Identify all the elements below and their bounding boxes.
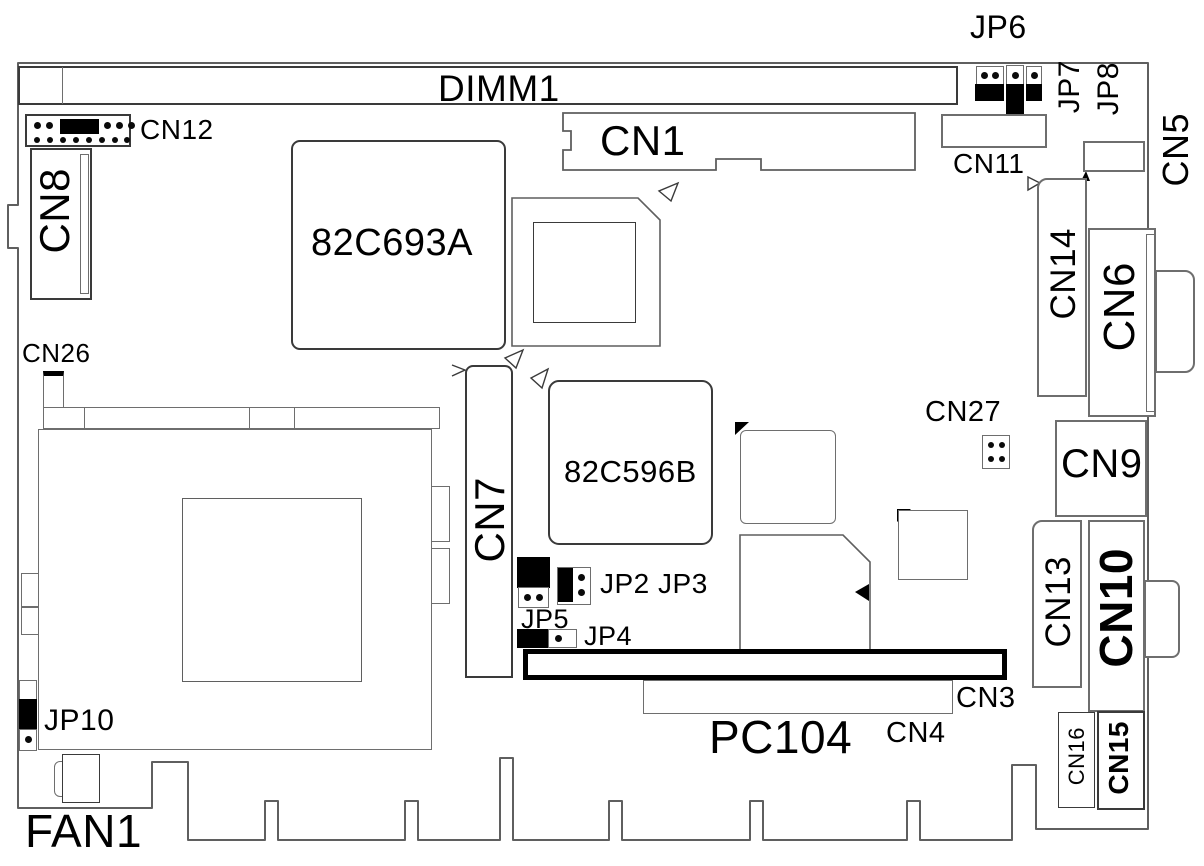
fan1-connector <box>62 754 100 803</box>
cn26-connector <box>43 371 64 408</box>
cn11-connector <box>941 114 1047 148</box>
cn26-label: CN26 <box>22 340 90 366</box>
jp7-label: JP7 <box>1055 60 1085 113</box>
pin1-arrow-white-cn1 <box>659 183 678 201</box>
jp7-jumper-cap <box>1006 84 1024 115</box>
cn7-label: CN7 <box>469 477 511 563</box>
cn4-pc104-header <box>643 680 953 714</box>
cn13-label: CN13 <box>1041 556 1076 647</box>
dimm1-socket-divider <box>62 67 63 104</box>
small-component-near-cn5 <box>1083 141 1145 172</box>
jp2-jumper-cap <box>517 557 550 588</box>
pin1-chevron-cn7 <box>452 365 465 376</box>
cpu-socket-left-tab-1 <box>21 573 39 607</box>
cn3-pc104-header <box>523 649 1007 680</box>
jp3-jumper <box>557 567 591 605</box>
jp10-pin-top <box>19 680 37 700</box>
chip-82c596b-label: 82C596B <box>564 456 697 487</box>
cn9-label: CN9 <box>1061 444 1143 484</box>
cn6-slot <box>1146 234 1155 412</box>
cpu-socket-left-tab-2 <box>21 607 39 635</box>
cn10-label: CN10 <box>1093 548 1139 668</box>
cn10-external-bump <box>1144 580 1180 658</box>
jp4-jumper-cap <box>517 629 548 648</box>
jp6-label: JP6 <box>970 11 1027 43</box>
jp8-jumper-cap <box>1026 84 1042 101</box>
jp10-label: JP10 <box>44 706 114 736</box>
cpu-socket-right-tab-2 <box>431 548 450 604</box>
cpu-socket-cavity <box>182 498 362 682</box>
cpu-socket-top-bar <box>43 407 440 429</box>
jp4-pins <box>548 629 577 648</box>
pin1-arrow-black-chip-b <box>855 584 869 601</box>
pc104-label: PC104 <box>709 714 852 760</box>
cn12-jumper-cap <box>60 119 99 134</box>
chamfered-chip-outline <box>740 535 870 650</box>
cn27-header <box>982 435 1010 469</box>
cpu-socket-right-tab-1 <box>431 486 450 542</box>
chip-a <box>740 430 836 524</box>
cn15-label: CN15 <box>1105 721 1133 795</box>
cn5-label: CN5 <box>1158 113 1194 187</box>
jp6-jumper-cap <box>975 84 1004 101</box>
cn12-label: CN12 <box>140 116 214 144</box>
jp2-jp3-label: JP2 JP3 <box>600 570 708 598</box>
jp8-label: JP8 <box>1094 62 1124 115</box>
jp4-label: JP4 <box>584 623 632 650</box>
cn12-header <box>25 114 131 147</box>
fan1-label: FAN1 <box>25 808 142 854</box>
chip-82c693a-label: 82C693A <box>311 224 473 262</box>
chip-c <box>898 510 968 580</box>
cn8-label: CN8 <box>34 168 76 254</box>
jp8-pins <box>1026 66 1042 85</box>
cn16-label: CN16 <box>1066 727 1088 785</box>
dimm1-label: DIMM1 <box>438 70 560 107</box>
jp10-jumper-cap <box>19 699 37 730</box>
pin1-arrow-white-82c596b <box>531 369 548 388</box>
cn1-label: CN1 <box>600 120 686 162</box>
cn11-label: CN11 <box>953 150 1025 178</box>
cn14-label: CN14 <box>1046 228 1081 319</box>
cn8-slot <box>80 154 89 294</box>
cn6-external-bump <box>1155 270 1195 373</box>
cn3-label: CN3 <box>956 684 1016 713</box>
bga-chip-inner <box>533 222 636 323</box>
jp6-pins <box>976 66 1004 85</box>
cn4-label: CN4 <box>886 719 946 748</box>
cn27-label: CN27 <box>925 398 1001 427</box>
cn6-label: CN6 <box>1098 262 1142 352</box>
jp10-pin-bottom <box>19 729 37 751</box>
jp7-pins <box>1006 65 1024 85</box>
board-layout-diagram: DIMM1 CN1 CN12 CN8 82C693A JP6 JP7 JP8 C… <box>0 0 1204 866</box>
